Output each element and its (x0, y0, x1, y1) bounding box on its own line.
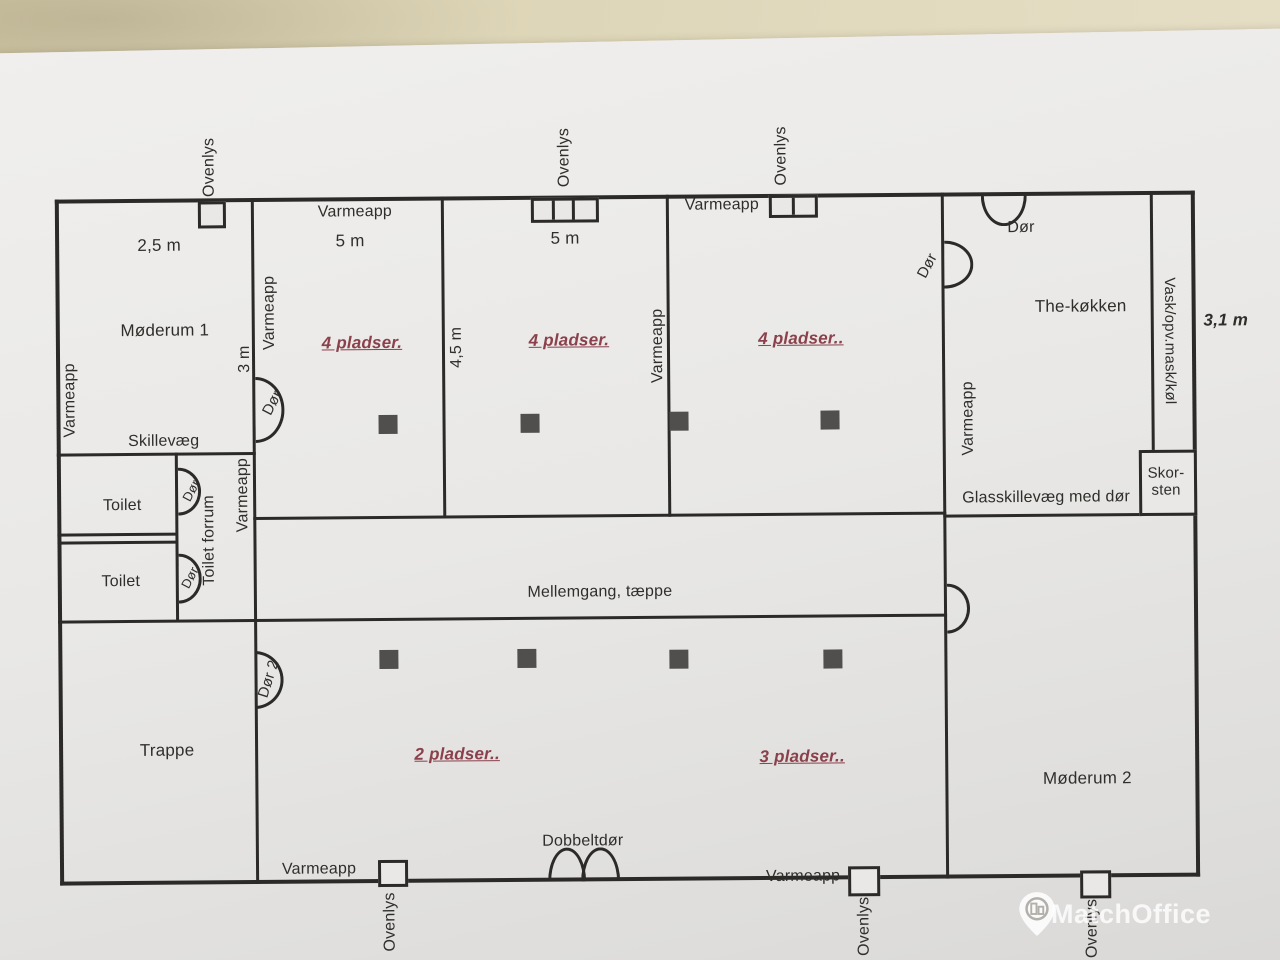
skylight-room3 (769, 195, 818, 218)
floor-plan: Ovenlys 2,5 m Møderum 1 Varmeapp Skillev… (0, 0, 1280, 960)
room-label-trappe: Trappe (140, 741, 195, 761)
seats-room2: 4 pladser. (529, 330, 610, 351)
dim-kitchen-width: 3,1 m (1203, 310, 1248, 330)
dim-moederum1-width: 2,5 m (137, 236, 181, 256)
wall-skillevaeg (57, 452, 256, 457)
wall-outer-bottom (60, 873, 1200, 886)
ovenlys-label: Ovenlys (772, 126, 790, 185)
skylight-bottom-left (378, 860, 408, 887)
ovenlys-label: Ovenlys (855, 897, 873, 956)
room-label-toilet-forrum: Toilet forrum (200, 495, 219, 586)
skylight-divider (572, 201, 575, 220)
column-post (378, 415, 397, 434)
ovenlys-label: Ovenlys (381, 892, 399, 951)
varmeapp-label: Varmeapp (318, 203, 392, 222)
ovenlys-label: Ovenlys (555, 128, 573, 187)
dim-moederum1-height: 3 m (236, 345, 254, 372)
door-label: Dør (1007, 219, 1034, 237)
room-label-moederum2: Møderum 2 (1043, 768, 1132, 789)
seats-bottom-right: 3 pladser.. (759, 746, 845, 767)
glass-partition-label: Glasskillevæg med dør (962, 488, 1130, 507)
skylight-room2 (531, 197, 599, 223)
wall-toilet-divider-a (57, 533, 177, 537)
floor-plan-photo: Ovenlys 2,5 m Møderum 1 Varmeapp Skillev… (0, 0, 1280, 960)
skylight-divider (552, 201, 555, 220)
dim-room1-width: 5 m (336, 231, 365, 251)
seats-room3: 4 pladser.. (758, 328, 844, 349)
matchoffice-watermark: MatchOffice (1016, 890, 1211, 938)
room-label-toilet1: Toilet (103, 497, 142, 515)
skorsten-line1: Skor- (1147, 464, 1184, 482)
door-label: Dør (914, 250, 941, 281)
column-post (520, 414, 539, 433)
room-label-toilet2: Toilet (101, 573, 140, 591)
room-label-kitchen: The-køkken (1035, 296, 1127, 317)
skylight-bottom-mid (848, 866, 880, 896)
dim-room2-height: 4,5 m (448, 327, 466, 368)
wall-room1-room2 (441, 197, 447, 519)
room-label-corridor: Mellemgang, tæppe (527, 583, 672, 602)
column-post (379, 650, 398, 669)
dim-room2-width: 5 m (551, 228, 580, 248)
double-door-label: Dobbeltdør (542, 832, 623, 851)
column-post (820, 410, 839, 429)
skorsten-line2: sten (1148, 482, 1185, 500)
skylight-divider (792, 198, 795, 215)
wall-corridor-top (253, 512, 946, 520)
column-post (669, 650, 688, 669)
skillevaeg-label: Skillevæg (128, 432, 199, 451)
varmeapp-label: Varmeapp (282, 860, 356, 879)
column-post (517, 649, 536, 668)
varmeapp-label: Varmeapp (766, 867, 840, 886)
seats-room1: 4 pladser. (322, 333, 403, 354)
door-arc-moederum2 (947, 583, 970, 633)
skylight-moederum1 (198, 201, 226, 228)
varmeapp-label: Varmeapp (234, 458, 253, 532)
room-label-moederum1: Møderum 1 (120, 320, 209, 341)
wall-vask-strip (1150, 191, 1155, 454)
watermark-text: MatchOffice (1051, 899, 1211, 930)
varmeapp-label: Varmeapp (685, 196, 759, 215)
varmeapp-label: Varmeapp (649, 309, 668, 383)
varmeapp-label: Varmeapp (61, 363, 80, 437)
double-door-arc-right (581, 847, 620, 881)
wall-room3-kitchen (941, 193, 949, 879)
vask-strip-label: Vask/opv.mask/køl (1161, 277, 1179, 404)
wall-outer-right (1191, 191, 1200, 877)
varmeapp-label: Varmeapp (260, 276, 279, 350)
wall-toilet-divider-b (57, 541, 177, 545)
seats-bottom-left: 2 pladser.. (414, 744, 500, 765)
wall-left-column (251, 198, 259, 884)
door-arc-kitchen-side (944, 240, 973, 288)
wall-corridor-bottom (58, 614, 947, 624)
skorsten-label: Skor- sten (1147, 464, 1184, 499)
column-post (823, 649, 842, 668)
varmeapp-label: Varmeapp (959, 381, 978, 455)
column-post (669, 412, 688, 431)
ovenlys-label: Ovenlys (200, 138, 218, 197)
